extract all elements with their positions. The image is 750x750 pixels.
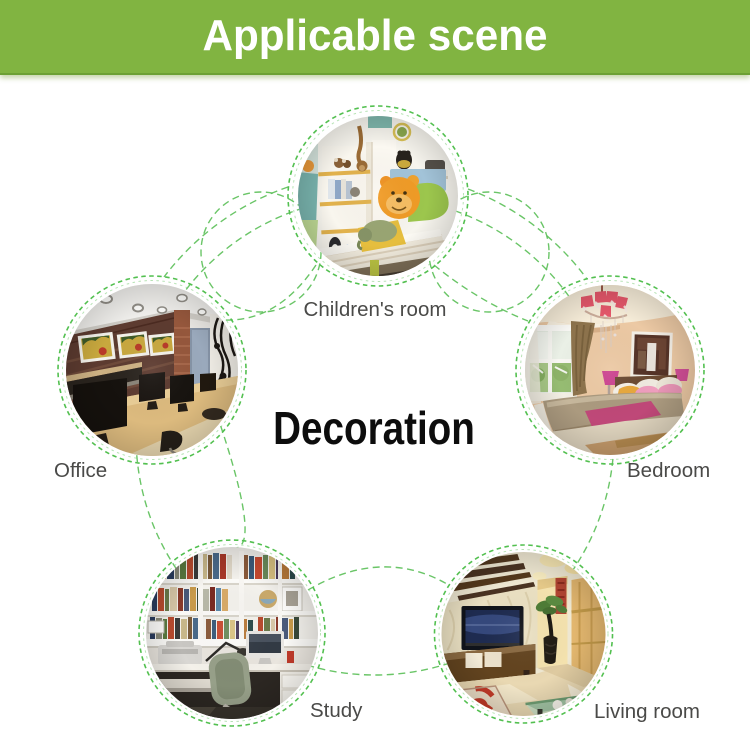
svg-text:Children's room: Children's room: [304, 298, 447, 321]
svg-text:Study: Study: [310, 699, 363, 722]
svg-text:Office: Office: [54, 459, 107, 482]
svg-text:Living room: Living room: [594, 700, 700, 723]
svg-text:Decoration: Decoration: [273, 403, 475, 454]
svg-text:Bedroom: Bedroom: [627, 459, 710, 482]
